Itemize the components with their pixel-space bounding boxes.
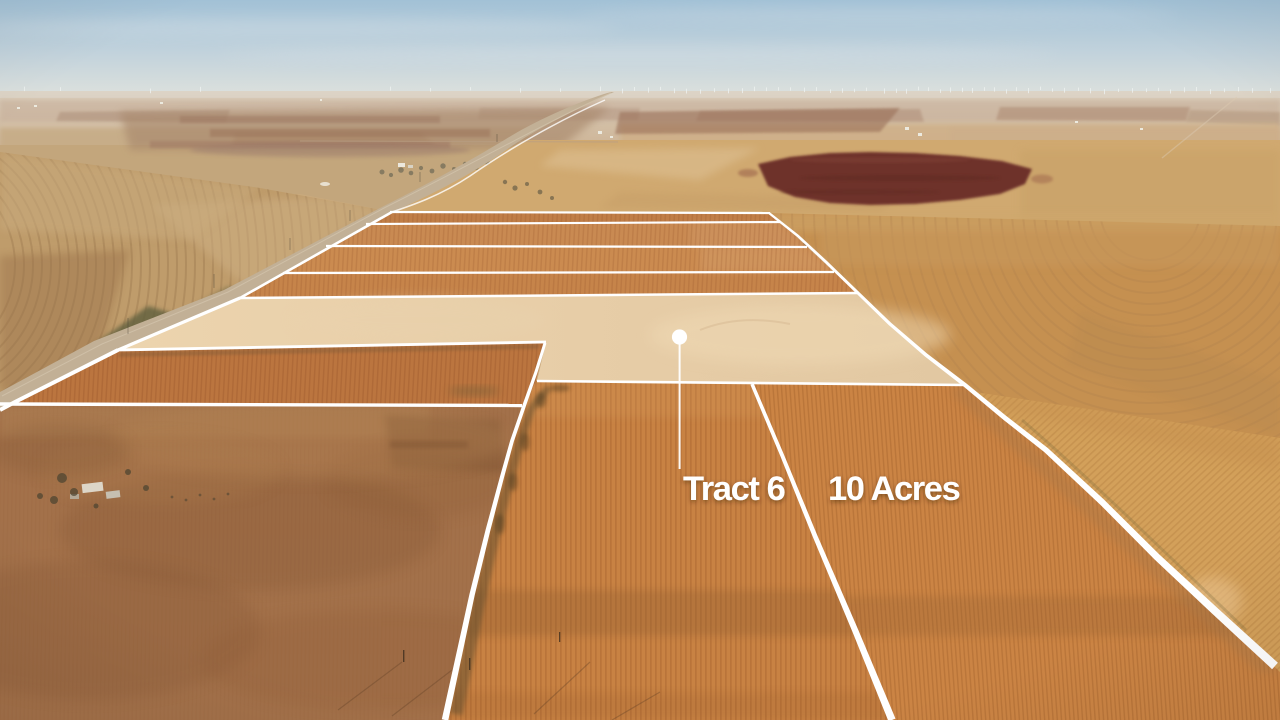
svg-text:Tract 6: Tract 6 xyxy=(683,470,785,508)
svg-text:10 Acres: 10 Acres xyxy=(828,470,960,508)
